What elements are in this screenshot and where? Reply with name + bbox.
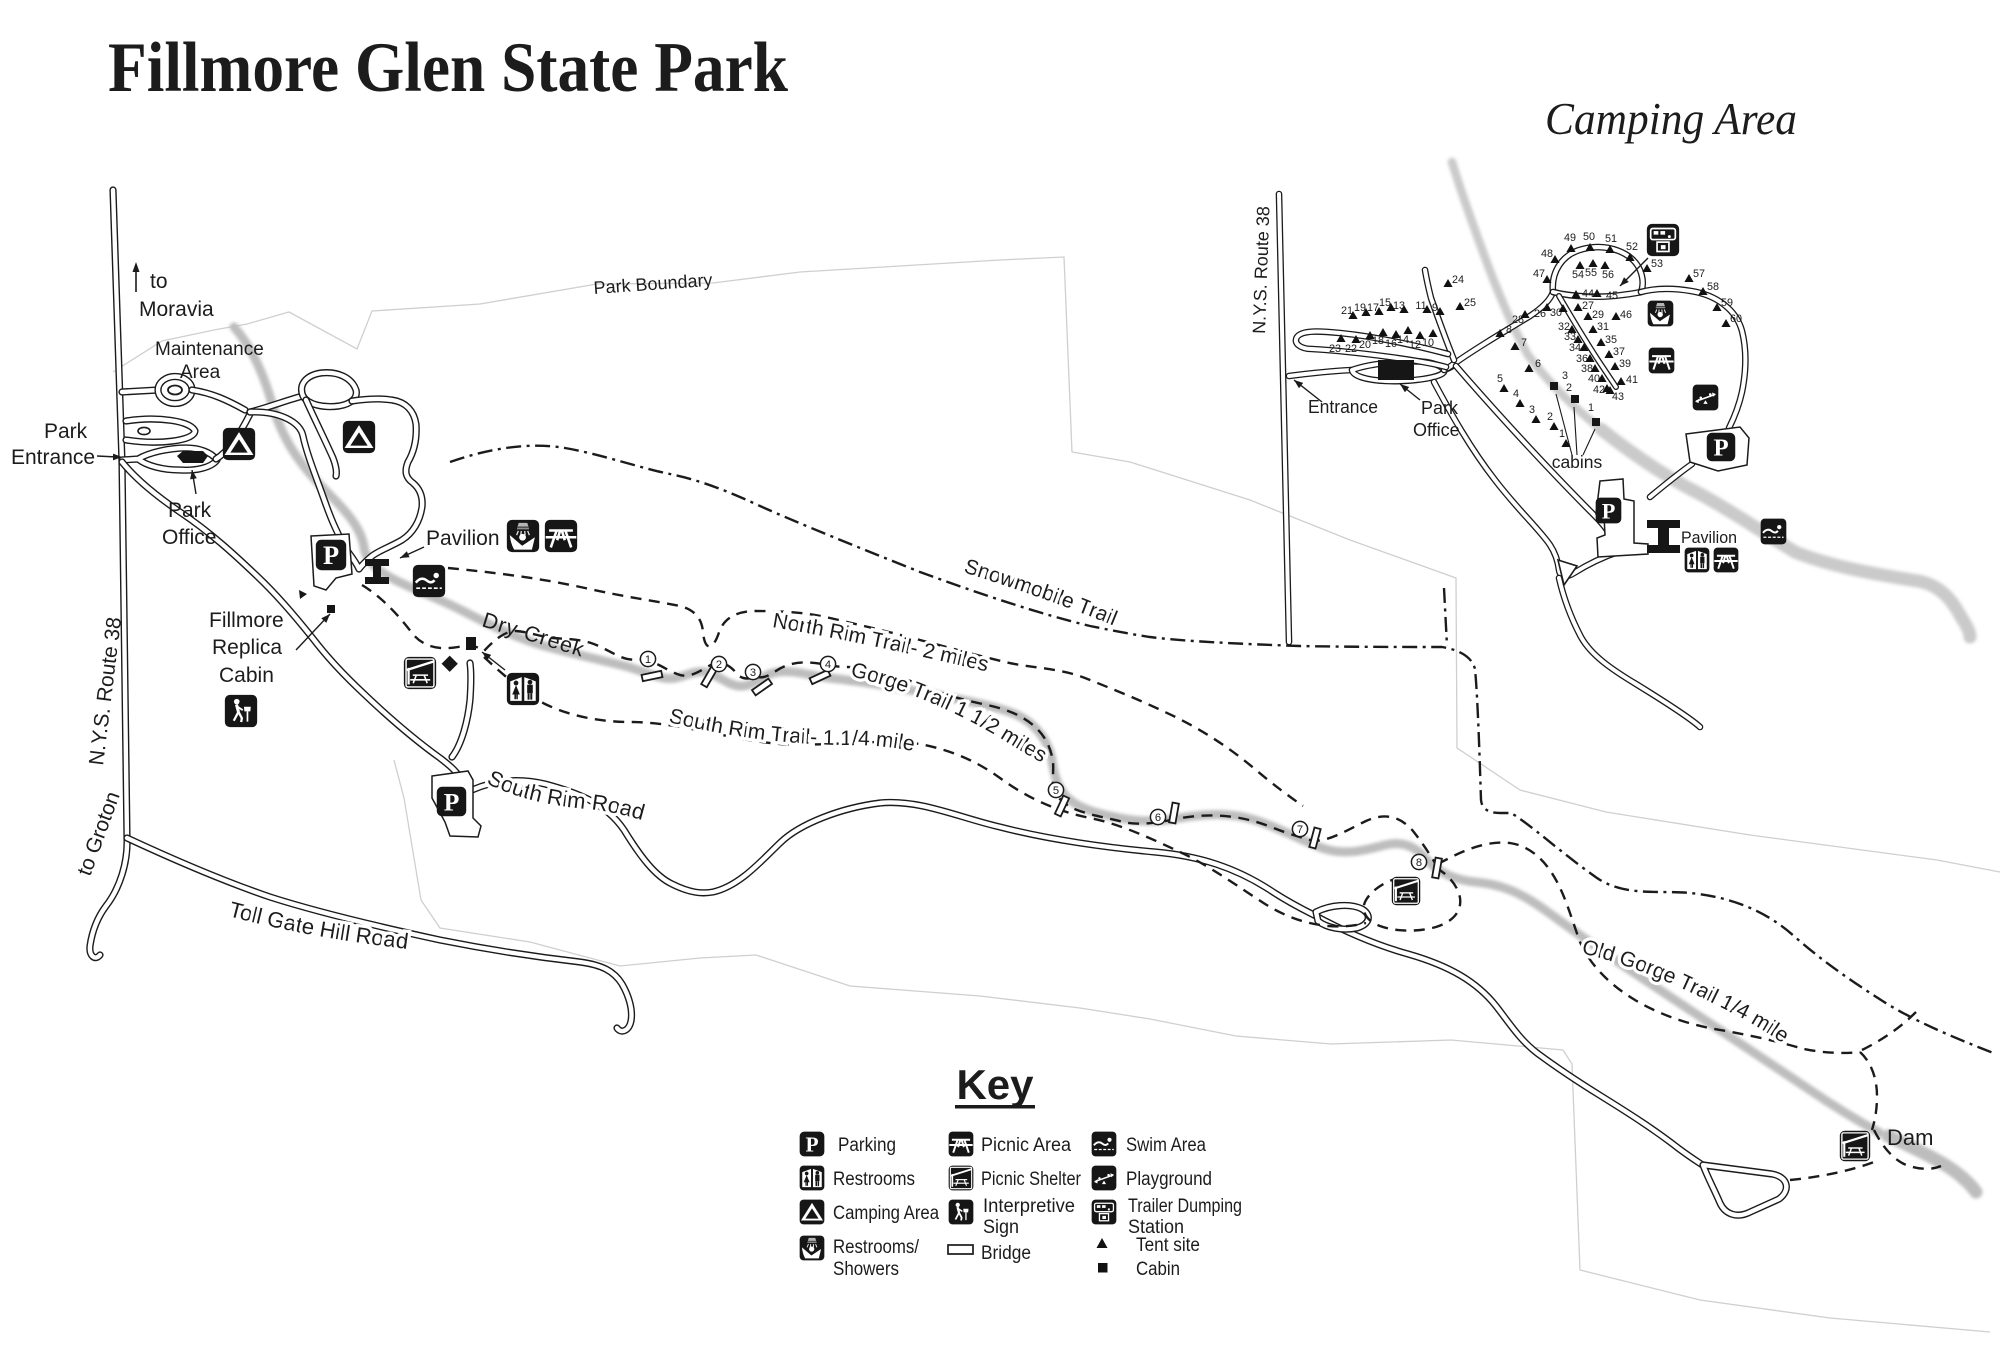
svg-text:Entrance: Entrance (11, 446, 95, 469)
svg-text:37: 37 (1613, 346, 1625, 358)
svg-text:Dam: Dam (1887, 1125, 1933, 1150)
svg-text:Bridge: Bridge (981, 1243, 1031, 1264)
svg-text:42: 42 (1593, 384, 1605, 396)
svg-text:4: 4 (825, 659, 831, 671)
svg-text:58: 58 (1707, 281, 1719, 293)
svg-text:5: 5 (1497, 373, 1503, 385)
svg-text:51: 51 (1605, 233, 1617, 245)
svg-text:31: 31 (1597, 321, 1609, 333)
svg-text:Area: Area (180, 362, 221, 383)
svg-text:52: 52 (1626, 241, 1638, 253)
svg-text:Park: Park (1421, 398, 1459, 418)
svg-text:23: 23 (1329, 343, 1341, 355)
svg-text:24: 24 (1452, 274, 1464, 286)
svg-text:to: to (150, 270, 168, 293)
svg-text:1: 1 (1559, 428, 1565, 440)
svg-text:Pavilion: Pavilion (1681, 528, 1737, 547)
svg-text:16: 16 (1385, 338, 1397, 350)
svg-text:Camping Area: Camping Area (1545, 93, 1797, 144)
svg-text:60: 60 (1730, 313, 1742, 325)
svg-text:Picnic Shelter: Picnic Shelter (981, 1169, 1082, 1190)
svg-text:1: 1 (645, 654, 651, 666)
svg-text:6: 6 (1535, 358, 1541, 370)
svg-text:49: 49 (1564, 232, 1576, 244)
svg-text:Key: Key (956, 1061, 1034, 1108)
svg-text:3: 3 (1562, 370, 1568, 382)
svg-text:Camping Area: Camping Area (833, 1203, 939, 1224)
svg-text:Park: Park (168, 499, 212, 522)
svg-text:Cabin: Cabin (1136, 1259, 1180, 1280)
svg-text:54: 54 (1572, 269, 1584, 281)
svg-text:22: 22 (1345, 343, 1357, 355)
svg-text:44: 44 (1582, 288, 1594, 300)
svg-text:7: 7 (1521, 337, 1527, 349)
svg-text:45: 45 (1606, 290, 1618, 302)
svg-text:Restrooms/: Restrooms/ (833, 1237, 920, 1258)
svg-text:Tent site: Tent site (1136, 1235, 1200, 1256)
svg-text:55: 55 (1585, 267, 1597, 279)
svg-text:Showers: Showers (833, 1259, 899, 1280)
svg-text:35: 35 (1605, 334, 1617, 346)
svg-text:56: 56 (1602, 269, 1614, 281)
svg-text:18: 18 (1372, 335, 1384, 347)
svg-text:1: 1 (1588, 402, 1594, 414)
svg-text:39: 39 (1619, 358, 1631, 370)
svg-text:cabins: cabins (1552, 452, 1603, 472)
svg-text:Replica: Replica (212, 636, 282, 659)
svg-text:2: 2 (716, 659, 722, 671)
svg-text:59: 59 (1721, 297, 1733, 309)
svg-text:41: 41 (1626, 374, 1638, 386)
svg-text:46: 46 (1620, 309, 1632, 321)
svg-text:Swim Area: Swim Area (1126, 1135, 1206, 1156)
svg-text:8: 8 (1416, 857, 1422, 869)
svg-text:2: 2 (1566, 382, 1572, 394)
svg-text:4: 4 (1513, 388, 1519, 400)
svg-text:Entrance: Entrance (1308, 397, 1378, 417)
svg-text:5: 5 (1053, 785, 1059, 797)
svg-text:3: 3 (1529, 404, 1535, 416)
svg-text:10: 10 (1422, 337, 1434, 349)
svg-text:Office: Office (1413, 420, 1460, 440)
svg-text:48: 48 (1541, 248, 1553, 260)
svg-text:Picnic Area: Picnic Area (981, 1135, 1071, 1156)
svg-text:2: 2 (1547, 411, 1553, 423)
svg-text:Office: Office (162, 526, 216, 549)
svg-text:6: 6 (1155, 812, 1161, 824)
svg-text:47: 47 (1533, 268, 1545, 280)
svg-text:53: 53 (1651, 258, 1663, 270)
svg-text:3: 3 (750, 667, 756, 679)
svg-text:Interpretive: Interpretive (983, 1196, 1075, 1217)
svg-text:8: 8 (1506, 324, 1512, 336)
svg-text:30: 30 (1550, 307, 1562, 319)
svg-text:20: 20 (1359, 339, 1371, 351)
svg-text:Fillmore: Fillmore (209, 609, 284, 632)
svg-text:25: 25 (1464, 297, 1476, 309)
svg-text:Playground: Playground (1126, 1169, 1212, 1190)
svg-text:57: 57 (1693, 268, 1705, 280)
svg-text:Moravia: Moravia (139, 298, 214, 321)
svg-text:7: 7 (1297, 824, 1303, 836)
svg-text:Restrooms: Restrooms (833, 1169, 915, 1190)
svg-text:12: 12 (1409, 339, 1421, 351)
svg-text:Maintenance: Maintenance (155, 339, 264, 360)
svg-text:14: 14 (1397, 334, 1409, 346)
svg-text:Park: Park (44, 420, 88, 443)
svg-text:29: 29 (1592, 309, 1604, 321)
svg-text:Fillmore Glen State Park: Fillmore Glen State Park (108, 29, 788, 107)
svg-text:Cabin: Cabin (219, 664, 274, 687)
svg-text:Pavilion: Pavilion (426, 527, 500, 550)
svg-text:Trailer Dumping: Trailer Dumping (1128, 1196, 1242, 1217)
svg-text:Sign: Sign (983, 1217, 1019, 1238)
svg-text:50: 50 (1583, 231, 1595, 243)
svg-text:Parking: Parking (838, 1135, 896, 1156)
